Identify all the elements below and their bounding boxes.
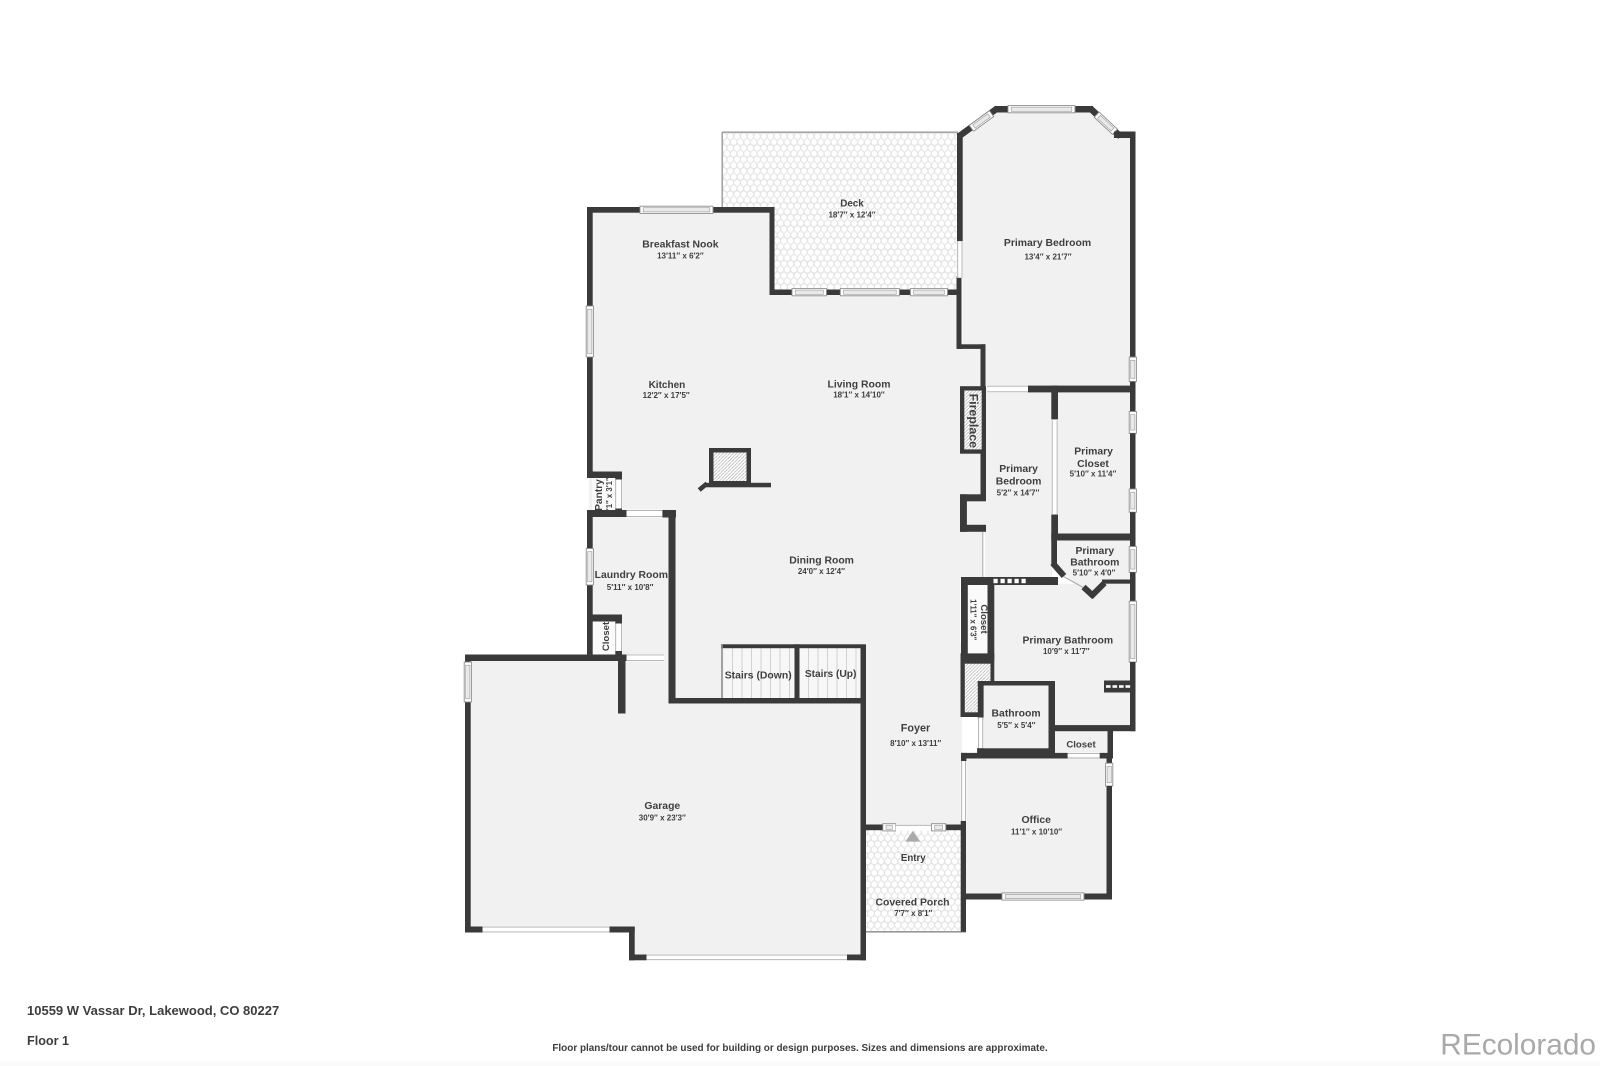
svg-text:Pantry: Pantry: [594, 479, 605, 511]
svg-text:11′1″ x 10′10″: 11′1″ x 10′10″: [1011, 828, 1062, 837]
svg-text:5′10″ x 11′4″: 5′10″ x 11′4″: [1070, 470, 1117, 479]
svg-text:10′9″ x 11′7″: 10′9″ x 11′7″: [1043, 647, 1090, 656]
svg-text:Breakfast Nook: Breakfast Nook: [642, 239, 718, 250]
svg-text:Stairs (Down): Stairs (Down): [725, 670, 792, 681]
svg-text:Floor plans/tour cannot be use: Floor plans/tour cannot be used for buil…: [552, 1043, 1048, 1054]
svg-text:Primary: Primary: [1074, 446, 1113, 457]
svg-text:Primary Bathroom: Primary Bathroom: [1022, 636, 1113, 647]
svg-text:5′10″ x 4′0″: 5′10″ x 4′0″: [1073, 569, 1116, 578]
svg-text:Floor 1: Floor 1: [27, 1034, 69, 1048]
svg-text:8′10″ x 13′11″: 8′10″ x 13′11″: [890, 739, 941, 748]
svg-text:Covered Porch: Covered Porch: [876, 897, 950, 908]
svg-text:Primary Bedroom: Primary Bedroom: [1004, 238, 1091, 249]
svg-text:Closet: Closet: [978, 604, 989, 634]
svg-text:Stairs (Up): Stairs (Up): [805, 669, 857, 680]
svg-text:REcolorado: REcolorado: [1440, 1028, 1596, 1061]
svg-text:Dining Room: Dining Room: [789, 555, 854, 566]
svg-text:13′11″ x 6′2″: 13′11″ x 6′2″: [657, 252, 704, 261]
svg-text:Living Room: Living Room: [828, 380, 891, 391]
svg-text:5′5″ x 5′4″: 5′5″ x 5′4″: [997, 721, 1035, 730]
svg-text:5′2″ x 14′7″: 5′2″ x 14′7″: [997, 489, 1040, 498]
svg-text:1′11″ x 6′3″: 1′11″ x 6′3″: [968, 599, 977, 640]
svg-text:Closet: Closet: [1077, 459, 1109, 470]
svg-text:Bedroom: Bedroom: [996, 477, 1042, 488]
svg-text:18′7″ x 12′4″: 18′7″ x 12′4″: [828, 210, 875, 219]
svg-text:Primary: Primary: [999, 464, 1038, 475]
svg-text:Office: Office: [1021, 815, 1051, 826]
svg-text:Closet: Closet: [1066, 740, 1096, 751]
svg-text:10559 W Vassar Dr, Lakewood, C: 10559 W Vassar Dr, Lakewood, CO 80227: [27, 1003, 279, 1018]
svg-text:Garage: Garage: [644, 801, 680, 812]
svg-text:Kitchen: Kitchen: [649, 380, 686, 391]
svg-text:Laundry Room: Laundry Room: [595, 570, 668, 581]
svg-text:Bathroom: Bathroom: [1070, 557, 1119, 568]
svg-text:Entry: Entry: [901, 853, 926, 864]
svg-text:Deck: Deck: [840, 199, 864, 210]
svg-text:12′2″ x 17′5″: 12′2″ x 17′5″: [643, 391, 690, 400]
svg-text:30′9″ x 23′3″: 30′9″ x 23′3″: [639, 813, 686, 822]
svg-text:24′0″ x 12′4″: 24′0″ x 12′4″: [798, 567, 845, 576]
svg-text:Fireplace: Fireplace: [967, 394, 981, 449]
svg-text:2′1″ x 3′1″: 2′1″ x 3′1″: [605, 477, 614, 514]
svg-text:Primary: Primary: [1075, 546, 1114, 557]
svg-text:18′1″ x 14′10″: 18′1″ x 14′10″: [833, 391, 885, 400]
svg-text:7′7″ x 8′1″: 7′7″ x 8′1″: [894, 909, 932, 918]
svg-text:Closet: Closet: [601, 621, 612, 651]
svg-text:Foyer: Foyer: [901, 722, 931, 734]
svg-text:13′4″ x 21′7″: 13′4″ x 21′7″: [1024, 252, 1071, 261]
svg-text:5′11″ x 10′8″: 5′11″ x 10′8″: [607, 583, 654, 592]
svg-text:Bathroom: Bathroom: [992, 708, 1041, 719]
